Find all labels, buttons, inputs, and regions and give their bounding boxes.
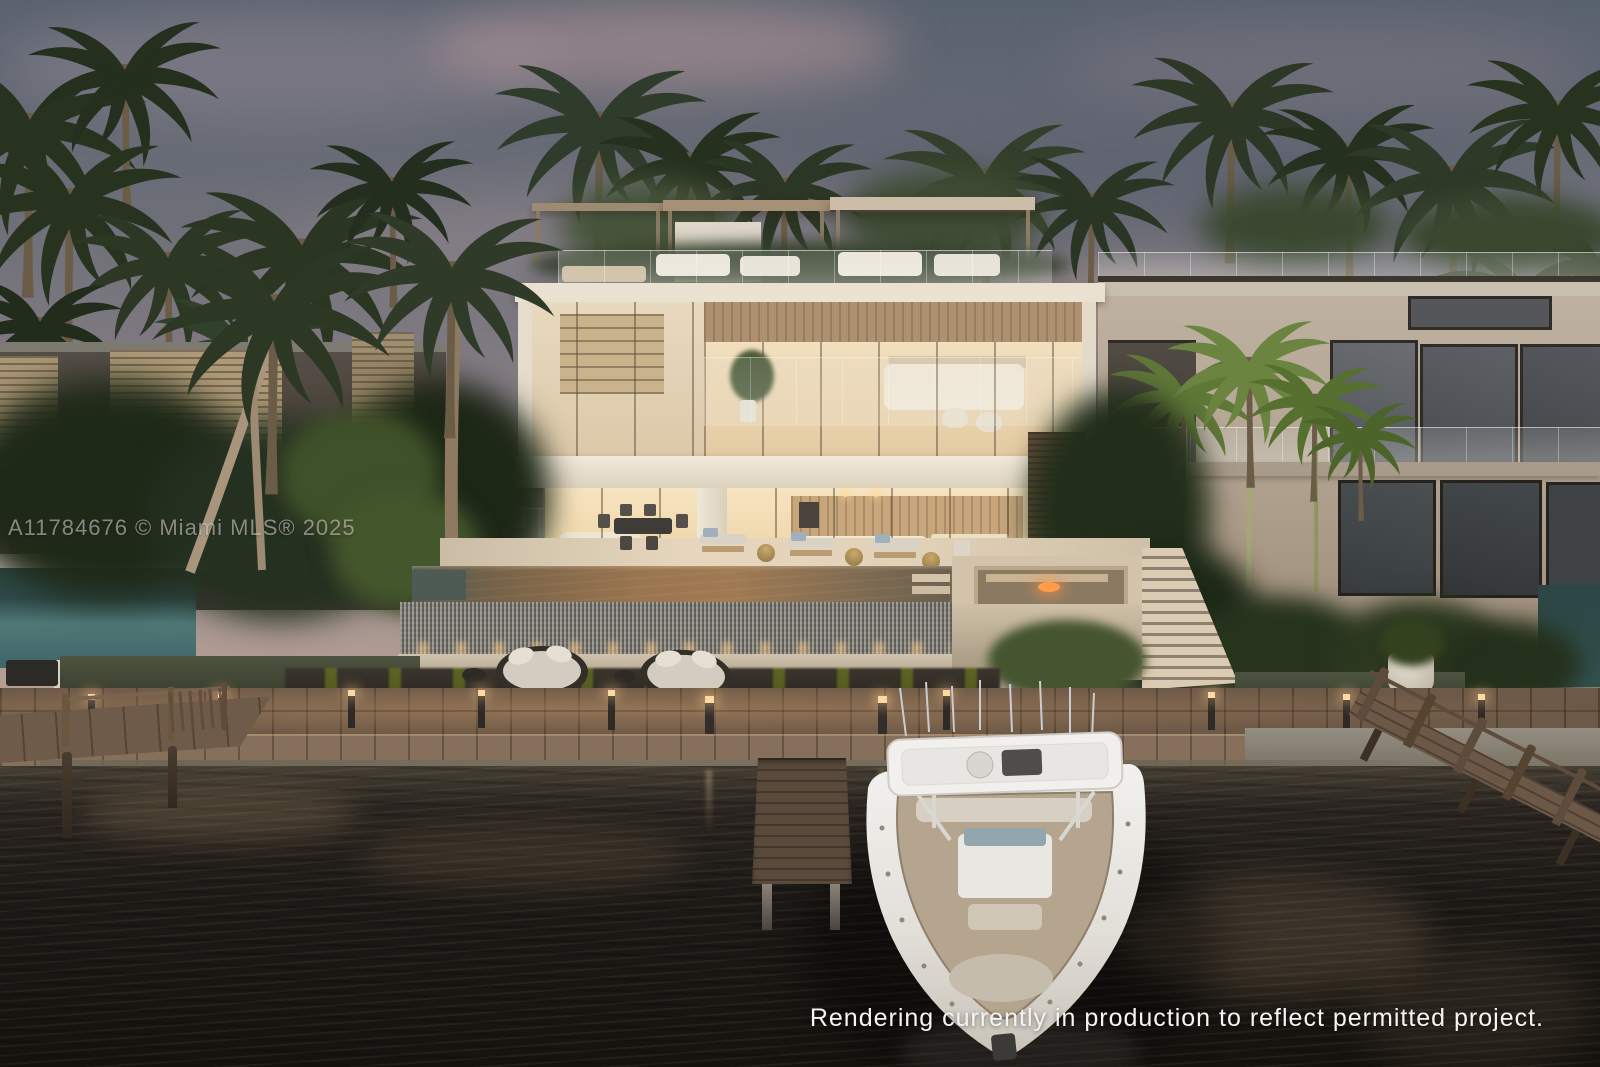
lounger-pillow [791, 532, 806, 541]
bollard-light-cap [348, 690, 355, 696]
palm-tree [338, 203, 565, 438]
pier-leg [762, 884, 772, 930]
pier-leg [1556, 829, 1580, 866]
bollard-light-cap [608, 690, 615, 696]
rail-balusters [168, 688, 225, 733]
stepping-paver [912, 574, 950, 582]
pool-ripples [412, 566, 952, 604]
bollard-light [1208, 692, 1215, 730]
bollard-light-cap [1343, 694, 1350, 700]
pier-leg [1360, 728, 1383, 762]
stern-bench [916, 798, 1092, 822]
side-table [462, 668, 486, 682]
light-reflection [706, 770, 712, 834]
bow-hardware [991, 1033, 1018, 1061]
stepping-paver [912, 586, 950, 594]
fire-flame [1038, 582, 1060, 592]
dining-chair [646, 536, 658, 550]
bollard-light [608, 690, 615, 730]
helm-seat [968, 904, 1042, 930]
pool-spill-box [412, 570, 466, 600]
dusk-waterfront-villa-rendering: A11784676 © Miami MLS® 2025 Rendering cu… [0, 0, 1600, 1067]
dock-deck [0, 696, 274, 764]
lounger-pillow [875, 534, 890, 543]
dining-chair [620, 504, 632, 516]
infinity-pool [412, 566, 952, 604]
fishing-rods [900, 680, 1094, 738]
bollard-light-cap [478, 690, 485, 696]
pier-leg [1457, 778, 1480, 814]
fire-pit-lounge [952, 556, 1142, 604]
pile-light-cap [705, 696, 714, 703]
dock-piling [168, 746, 177, 808]
wicker-stool [845, 548, 863, 566]
bollard-light [478, 690, 485, 728]
radar-dome [966, 751, 993, 778]
palm-tree [145, 229, 402, 495]
bow-cushion [949, 954, 1053, 1002]
side-table [614, 670, 636, 683]
dining-chair [676, 514, 688, 528]
mls-watermark: A11784676 © Miami MLS® 2025 [8, 515, 356, 541]
rendering-disclaimer-caption: Rendering currently in production to ref… [810, 1004, 1544, 1033]
outdoor-dining-table [614, 518, 672, 534]
rail-post [62, 694, 69, 746]
lounger-pillow [703, 528, 718, 537]
pot-plant [1380, 618, 1444, 666]
bollard-light-cap [1208, 692, 1215, 698]
water-glint [360, 826, 690, 890]
dock-piling [62, 752, 72, 838]
dining-chair [598, 514, 610, 528]
electronics-box [1001, 749, 1042, 776]
bench-cushions [986, 574, 1108, 582]
bollard-light [348, 690, 355, 728]
wicker-stool [757, 544, 775, 562]
bollard-light-cap [1478, 694, 1485, 700]
dining-chair [644, 504, 656, 516]
dining-chair [620, 536, 632, 550]
old-dock-left [0, 676, 288, 856]
console-windshield [964, 828, 1046, 846]
